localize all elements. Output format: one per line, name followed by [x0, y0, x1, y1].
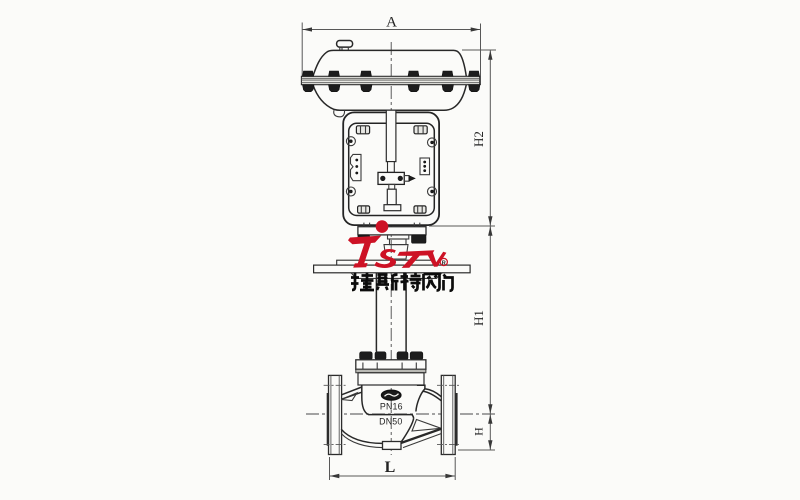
- svg-text:H2: H2: [471, 131, 486, 147]
- svg-text:H1: H1: [471, 310, 486, 326]
- svg-text:DN50: DN50: [379, 417, 402, 427]
- svg-text:A: A: [386, 15, 397, 31]
- svg-text:L: L: [385, 459, 396, 476]
- svg-text:PN16: PN16: [380, 401, 403, 411]
- svg-text:H: H: [472, 427, 486, 436]
- svg-text:R: R: [442, 261, 446, 267]
